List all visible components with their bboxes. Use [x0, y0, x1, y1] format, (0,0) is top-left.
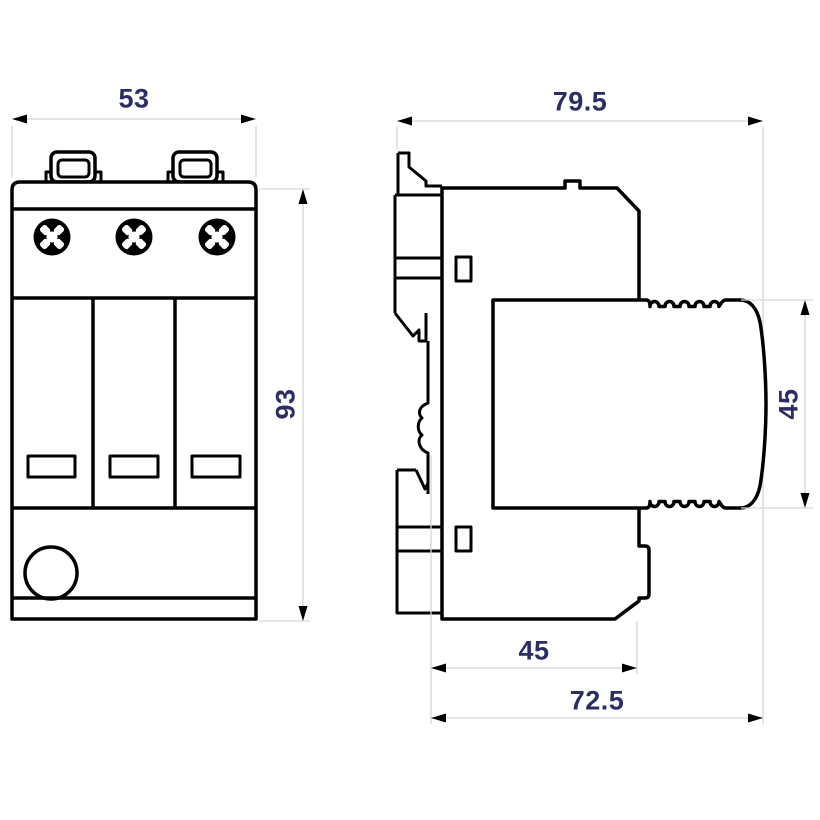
side-body-slot-upper	[456, 257, 471, 281]
indicator-window	[110, 456, 158, 477]
dim-arrow	[299, 189, 308, 204]
indicator-window	[28, 456, 75, 477]
side-view-plug-module	[493, 300, 766, 508]
rail-latch-lower	[416, 470, 428, 489]
dim-arrow	[748, 714, 763, 723]
screw-head-icon	[34, 219, 71, 256]
rail-spring-profile	[418, 341, 428, 494]
dim-arrow	[12, 115, 27, 124]
terminal-screws	[34, 219, 236, 256]
technical-drawing-canvas: 53 93 79.5 45 45 72.5	[0, 0, 820, 820]
side-body-slot-lower	[456, 527, 471, 551]
dim-label-overall-depth: 79.5	[553, 87, 608, 118]
dimension-drawing-svg	[0, 0, 820, 820]
rail-latch-upper	[395, 313, 426, 341]
dim-label-front-width: 53	[118, 84, 149, 115]
dim-label-base-depth: 45	[518, 636, 549, 667]
dim-arrow	[241, 115, 256, 124]
rail-block-outline	[397, 470, 443, 613]
dim-label-module-height: 45	[774, 388, 805, 419]
clip-left-window	[58, 160, 89, 177]
screw-head-icon	[116, 219, 153, 256]
dim-arrow	[748, 117, 763, 126]
clip-right-window	[180, 160, 211, 177]
front-top-clips	[46, 152, 223, 182]
front-view	[12, 152, 256, 619]
indicator-window	[192, 456, 240, 477]
screw-head-icon	[199, 219, 236, 256]
dim-arrow	[431, 714, 446, 723]
side-view-rail-clip	[395, 153, 443, 613]
dim-arrow	[431, 664, 446, 673]
dim-arrow	[801, 493, 810, 508]
dim-arrow	[299, 606, 308, 621]
dim-arrow	[397, 117, 412, 126]
dim-label-depth-with-module: 72.5	[570, 686, 625, 717]
dim-arrow	[801, 300, 810, 315]
dim-arrow	[622, 664, 637, 673]
clip-top-tab	[398, 153, 442, 186]
dim-label-front-height: 93	[271, 388, 302, 419]
plug-module-outline	[493, 300, 766, 508]
